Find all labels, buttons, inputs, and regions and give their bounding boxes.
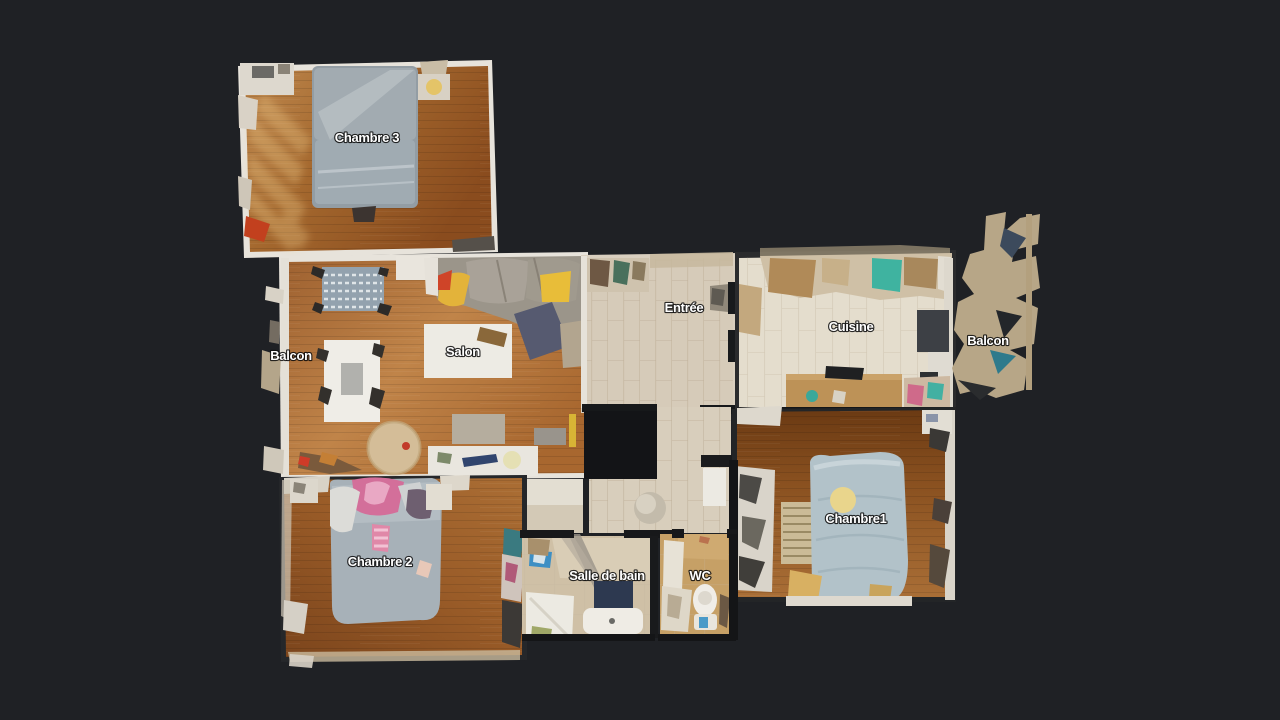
svg-text:Chambre1: Chambre1: [825, 511, 886, 526]
svg-text:Salle de bain: Salle de bain: [569, 568, 645, 583]
svg-text:Salon: Salon: [446, 344, 480, 359]
svg-text:Balcon: Balcon: [270, 348, 312, 363]
svg-text:WC: WC: [689, 568, 711, 583]
svg-text:Chambre 3: Chambre 3: [335, 130, 400, 145]
svg-text:Entrée: Entrée: [665, 300, 704, 315]
svg-text:Cuisine: Cuisine: [829, 319, 874, 334]
svg-text:Chambre 2: Chambre 2: [348, 554, 413, 569]
svg-text:Balcon: Balcon: [967, 333, 1009, 348]
